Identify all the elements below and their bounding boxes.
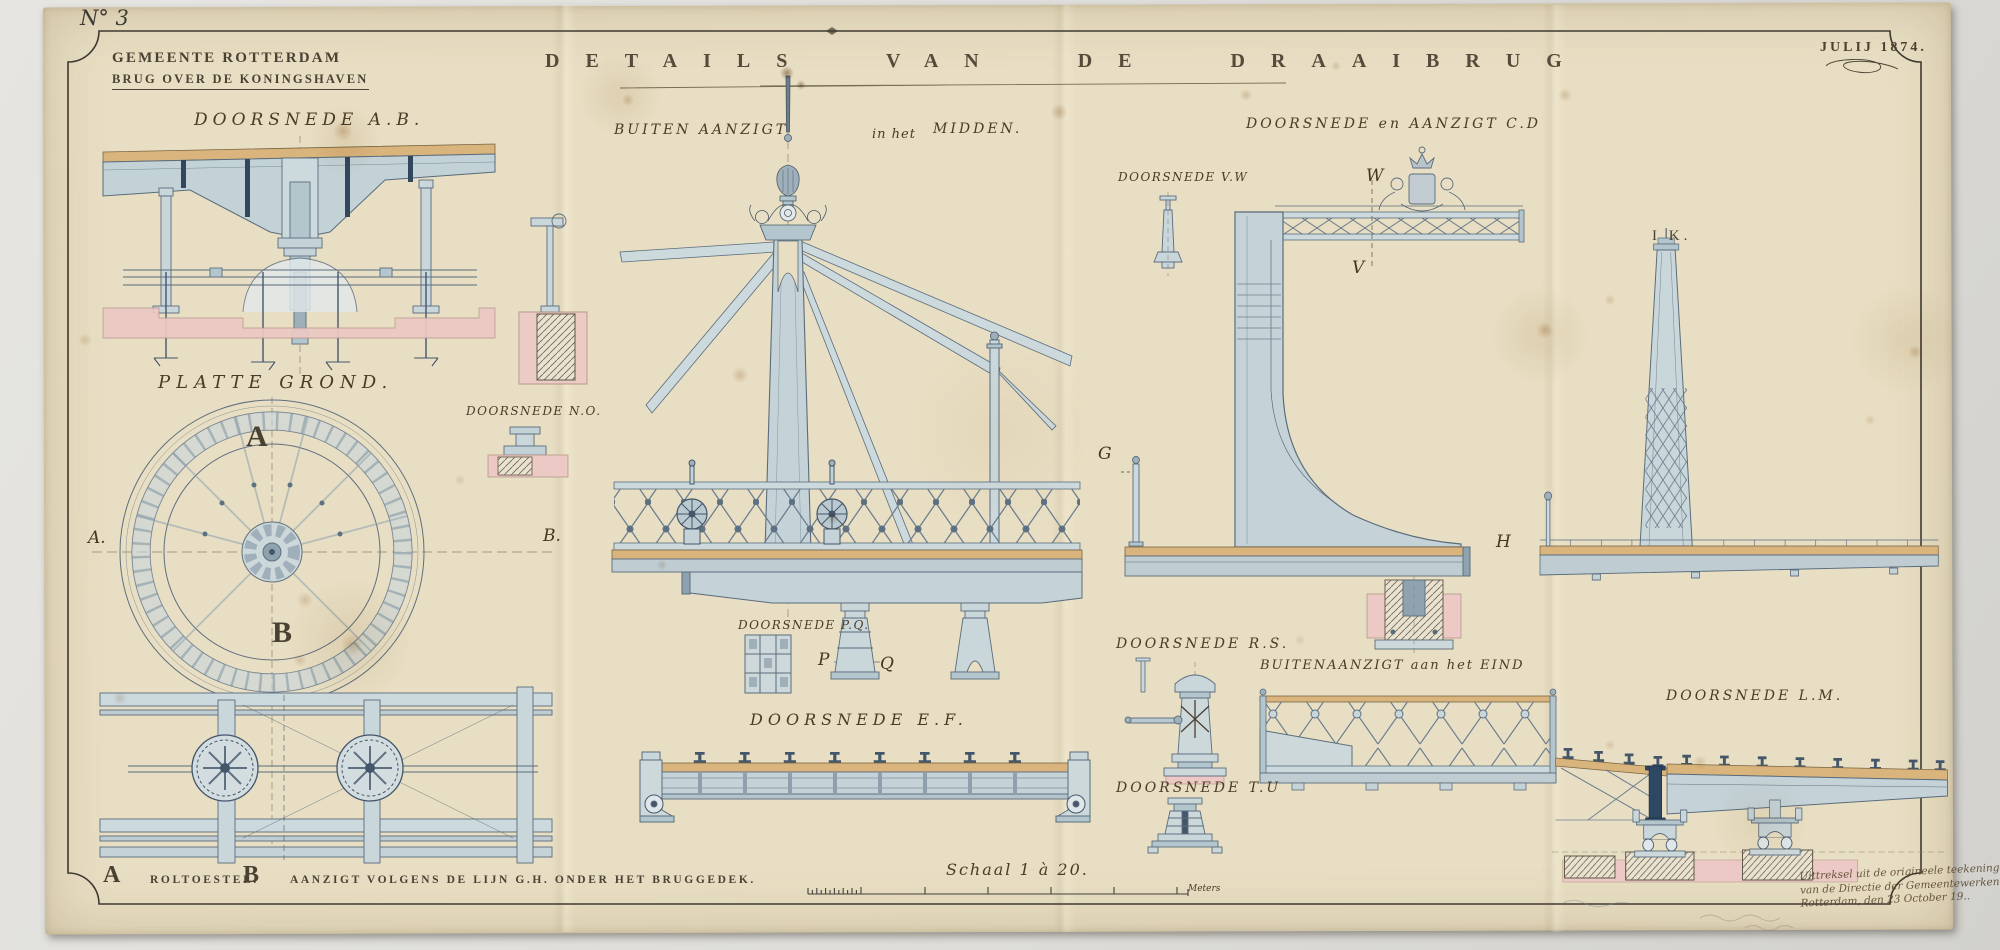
label-doorsnede-lm: DOORSNEDE L.M.: [1666, 688, 1843, 704]
legend-b-key: B: [243, 862, 259, 889]
sheet-subtitle: BRUG OVER DE KONINGSHAVEN: [112, 72, 369, 90]
scale-label: Schaal 1 à 20.: [946, 860, 1089, 879]
deck-strip: [612, 550, 1082, 559]
label-doorsnede-no: DOORSNEDE N.O.: [466, 404, 602, 418]
label-doorsnede-ef: DOORSNEDE E.F.: [750, 710, 968, 729]
archival-annotation: Uittreksel uit de origineele teekeningen…: [1799, 861, 2000, 911]
label-doorsnede-tu: DOORSNEDE T.U: [1116, 780, 1281, 796]
lever-arm: [1125, 716, 1182, 724]
pivot-column: [1164, 675, 1226, 776]
marker-v: V: [1352, 258, 1364, 278]
underdeck-girder-pq: [682, 572, 1082, 662]
drawing-doorsnede-ef: [640, 730, 1090, 845]
pencil-scribble: [1700, 915, 1793, 931]
label-doorsnede-vw: DOORSNEDE V.W: [1118, 170, 1248, 184]
deck-brackets: [1292, 783, 1526, 790]
label-doorsnede-rs: DOORSNEDE R.S.: [1116, 636, 1289, 652]
scanned-drawing-sheet: N° 3 GEMEENTE ROTTERDAM BRUG OVER DE KON…: [0, 0, 2000, 950]
agency-title: GEMEENTE ROTTERDAM: [112, 50, 341, 67]
deck-band: [1260, 773, 1556, 783]
curved-column: [1235, 212, 1461, 547]
sheet-title: DETAILS VAN DE DRAAIBRUG: [545, 50, 1588, 73]
girder-band: [660, 772, 1070, 799]
drawing-ik-column: [1540, 228, 1950, 668]
small-pedestal: [1148, 798, 1222, 853]
label-in-het: in het: [872, 127, 916, 142]
label-platte-grond: PLATTE GROND.: [158, 372, 393, 393]
deck-strip: [1125, 547, 1470, 556]
underside-framework: [100, 687, 552, 863]
scale-bar: [798, 880, 1208, 906]
crest-ornament: [1379, 147, 1465, 211]
drawing-doorsnede-rs: [1120, 656, 1270, 791]
rail-profiles: [694, 752, 1021, 763]
deck-strip: [660, 763, 1070, 772]
label-doorsnede-cd: DOORSNEDE en AANZIGT C.D: [1246, 116, 1541, 132]
right-girder: [1667, 774, 1947, 820]
marker-h: H: [1496, 532, 1511, 552]
label-midden: MIDDEN.: [933, 121, 1022, 137]
marker-g: G: [1098, 444, 1112, 464]
center-hub: [242, 522, 302, 582]
drawing-doorsnede-tu: [1120, 790, 1250, 870]
roller-gear-right: [337, 735, 403, 801]
bearing-block-detail: [745, 635, 791, 693]
marker-plan-b: B: [272, 616, 292, 650]
label-doorsnede-pq: DOORSNEDE P.Q.: [738, 618, 870, 632]
marker-line-b: B.: [543, 526, 561, 546]
drawing-doorsnede-no: [470, 425, 580, 480]
legend-a-key: A: [103, 862, 120, 889]
drawing-doorsnede-lm: [1552, 702, 1952, 882]
sheet-number: N° 3: [80, 6, 129, 30]
lattice-column: [1640, 228, 1692, 546]
roller-gear-left: [192, 735, 258, 801]
label-buiten-aanzigt: BUITEN AANZIGT: [614, 122, 788, 138]
marker-w: W: [1366, 166, 1383, 186]
drawing-doorsnede-ab: [95, 122, 595, 384]
label-ik: I K.: [1652, 228, 1691, 245]
bottom-chord: [1260, 766, 1556, 773]
pivot-bearing-detail: [1367, 576, 1461, 654]
marker-q: Q: [880, 654, 894, 674]
legend-b-text: AANZIGT VOLGENS DE LIJN G.H. ONDER HET B…: [290, 874, 756, 886]
marker-line-a: A.: [88, 528, 106, 548]
drawing-pylon-middle: [612, 70, 1082, 702]
pivot-pedestal-left: [831, 603, 879, 679]
top-chord: [1260, 696, 1556, 702]
deck-side-view: [1540, 492, 1938, 580]
marker-p: P: [818, 650, 829, 670]
border-center-mark: [826, 27, 838, 35]
date-flourish: [1826, 59, 1898, 72]
side-bracket-detail: [519, 214, 587, 384]
deck-girder: [612, 559, 1082, 572]
sheet-date: JULIJ 1874.: [1820, 40, 1927, 56]
drawing-eind-truss: [1252, 682, 1562, 832]
label-buitenaanzigt-eind: BUITENAANZIGT aan het EIND: [1260, 658, 1525, 673]
scale-unit-label: Meters: [1188, 884, 1220, 894]
pivot-pedestal-right: [951, 603, 999, 679]
drawing-doorsnede-cd: [1125, 132, 1525, 667]
marker-plan-a: A: [246, 420, 268, 454]
truss-diagonals: [1556, 768, 1660, 820]
left-post: [1121, 457, 1143, 547]
label-doorsnede-ab: DOORSNEDE A.B.: [194, 110, 424, 130]
